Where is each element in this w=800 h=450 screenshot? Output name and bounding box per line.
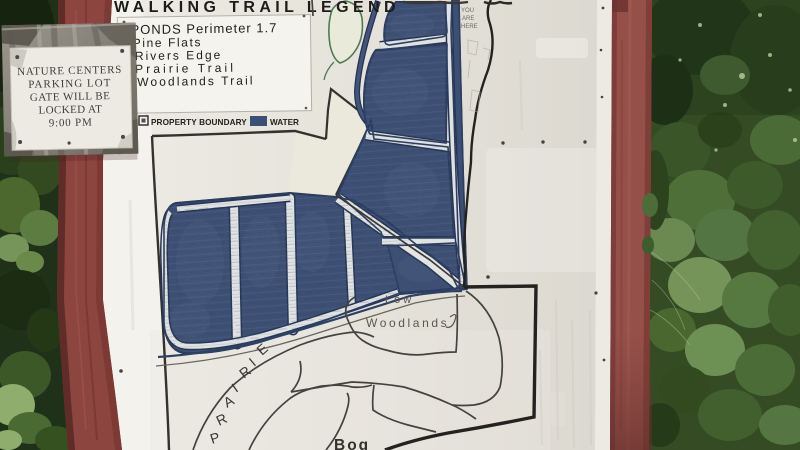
svg-text:Low: Low (385, 294, 414, 306)
svg-text:PROPERTY BOUNDARY: PROPERTY BOUNDARY (151, 118, 247, 127)
svg-text:Woodlands Trail: Woodlands Trail (137, 73, 255, 89)
svg-text:Bog: Bog (334, 437, 370, 450)
svg-text:LOCKED AT: LOCKED AT (38, 103, 102, 116)
svg-text:YOU: YOU (461, 8, 474, 14)
svg-text:PONDS Perimeter 1.7: PONDS Perimeter 1.7 (130, 20, 277, 37)
svg-text:NATURE CENTERS: NATURE CENTERS (17, 64, 122, 78)
svg-text:PARKING LOT: PARKING LOT (28, 77, 111, 91)
svg-text:WALKING TRAIL LEGEND: WALKING TRAIL LEGEND (114, 0, 400, 16)
svg-text:9:00 PM: 9:00 PM (49, 117, 93, 130)
svg-text:Woodlands: Woodlands (366, 316, 449, 330)
svg-text:GATE WILL BE: GATE WILL BE (30, 90, 111, 104)
svg-text:ARE: ARE (462, 16, 474, 22)
svg-text:HERE: HERE (461, 24, 478, 30)
svg-text:WATER: WATER (270, 118, 299, 127)
